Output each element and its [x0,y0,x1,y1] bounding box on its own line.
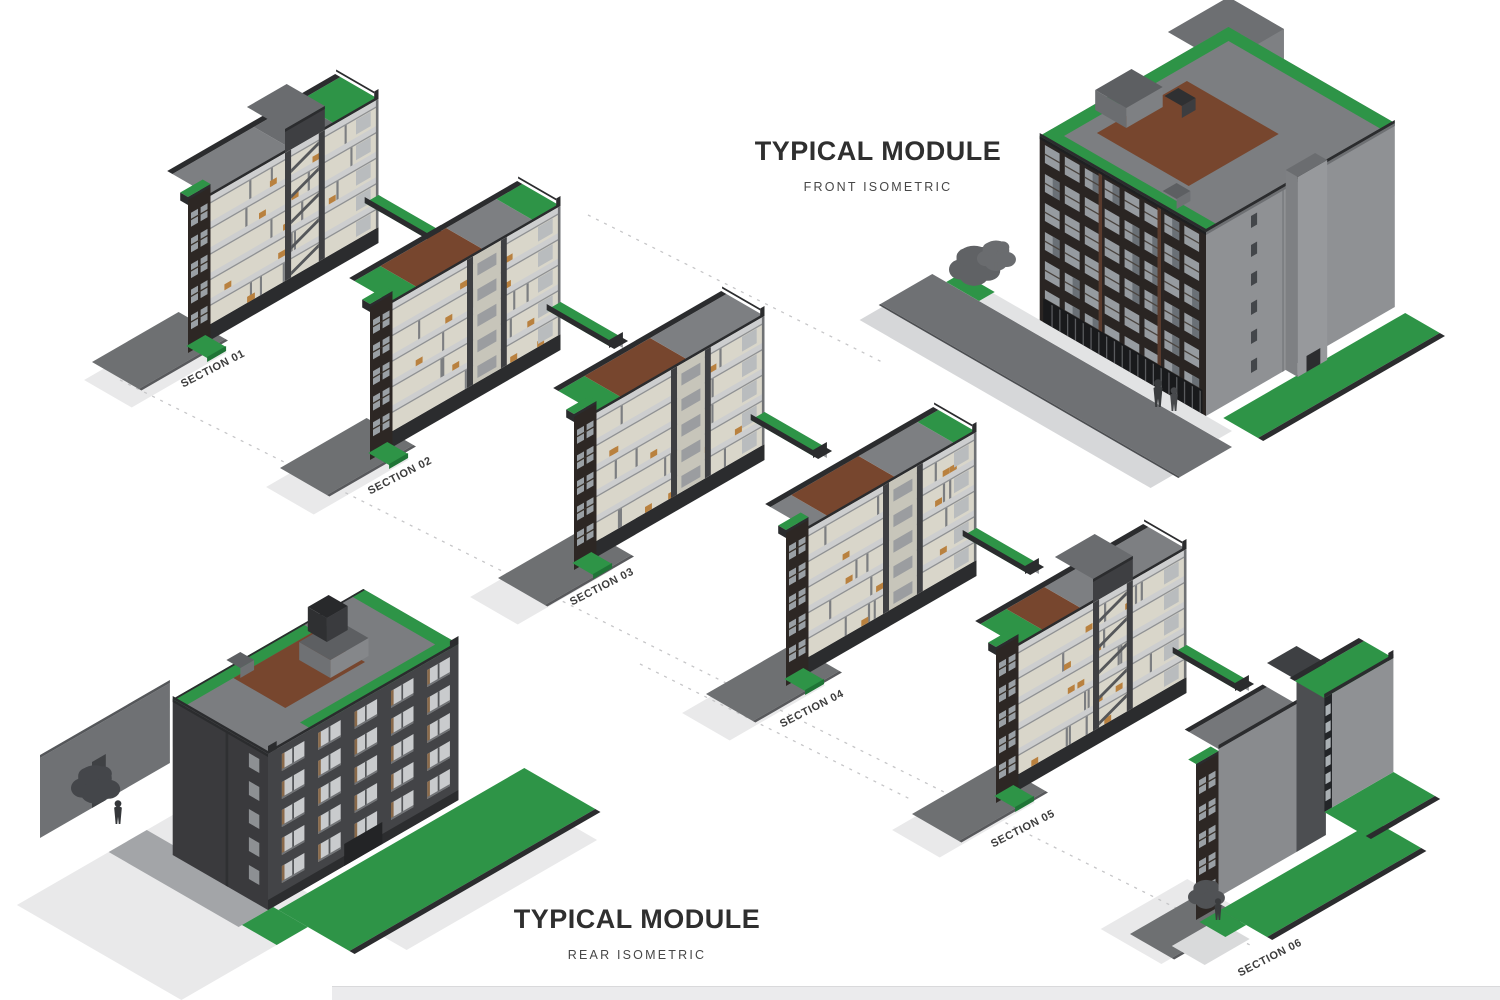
architectural-diagram-canvas: TYPICAL MODULE FRONT ISOMETRIC TYPICAL M… [0,0,1500,1000]
typical-module-front-building [860,0,1445,488]
rear-module-subtitle: REAR ISOMETRIC [495,948,779,962]
front-module-title: TYPICAL MODULE [736,136,1020,167]
rear-title-block: TYPICAL MODULE REAR ISOMETRIC [495,904,779,962]
front-module-subtitle: FRONT ISOMETRIC [736,180,1020,194]
bottom-edge-bar [332,986,1500,1000]
rear-module-title: TYPICAL MODULE [495,904,779,935]
front-title-block: TYPICAL MODULE FRONT ISOMETRIC [736,136,1020,194]
section-06-building [1172,638,1440,965]
